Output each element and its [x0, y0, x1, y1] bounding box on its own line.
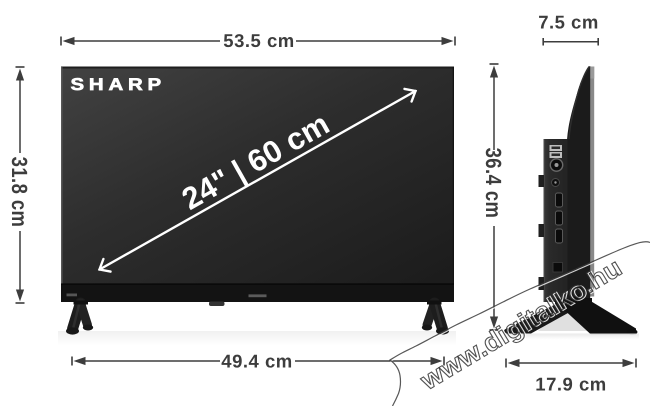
svg-text:SHARP: SHARP [71, 75, 166, 94]
svg-text:17.9 cm: 17.9 cm [535, 374, 606, 395]
svg-text:53.5 cm: 53.5 cm [223, 30, 294, 51]
svg-text:31.8 cm: 31.8 cm [7, 157, 32, 228]
svg-text:7.5 cm: 7.5 cm [538, 12, 599, 33]
svg-text:49.4 cm: 49.4 cm [221, 350, 292, 371]
svg-text:36.4 cm: 36.4 cm [481, 148, 506, 219]
